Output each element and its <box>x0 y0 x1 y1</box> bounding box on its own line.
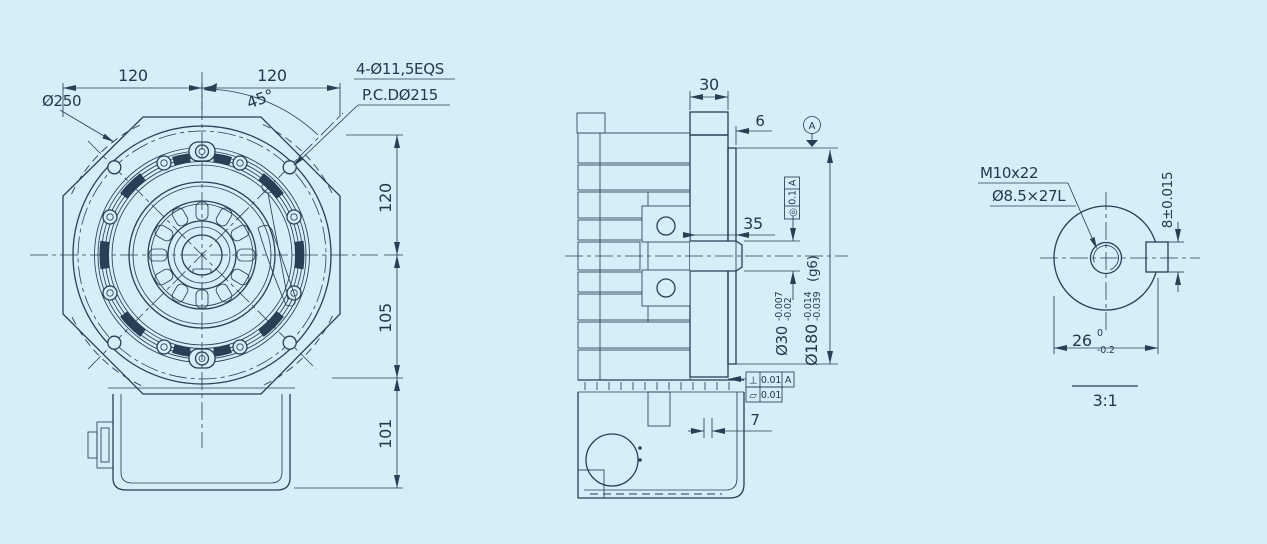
dim-shaft-35: 35 <box>683 214 775 238</box>
fcf-perp-symbol: ⊥ <box>749 376 758 387</box>
dia180-nominal: Ø180 <box>802 324 821 366</box>
fcf-runout: ◎ 0.1 A <box>785 177 800 219</box>
section-view: 30 6 A ◎ 0.1 A <box>565 75 848 498</box>
dim-101: 101 <box>376 419 395 449</box>
fcf-runout-tol: 0.1 <box>788 190 799 205</box>
front-view: 120 120 45° Ø250 4-Ø11,5EQS P.C.DØ215 <box>30 60 455 490</box>
fcf-flat-tol: 0.01 <box>761 390 782 401</box>
dim-120-right: 120 <box>257 66 287 85</box>
label-m10: M10x22 <box>980 164 1038 182</box>
cable-gland <box>586 434 638 486</box>
dia250-leader: Ø250 <box>42 92 114 142</box>
connector <box>97 422 113 468</box>
fcf-bottom: ⊥ 0.01 A ▱ 0.01 <box>728 372 794 402</box>
fcf-runout-datum: A <box>788 179 799 186</box>
dim-dia30: Ø30 -0.007 -0.02 <box>744 216 800 356</box>
dia30-lower: -0.02 <box>783 297 794 321</box>
dim-120-left: 120 <box>118 66 148 85</box>
dim-45deg-text: 45° <box>244 85 276 112</box>
dim-26-upper: 0 <box>1097 328 1103 339</box>
dim-26-lower: -0.2 <box>1097 345 1115 356</box>
dia180-lower: -0.039 <box>812 291 823 321</box>
dim-30: 30 <box>699 75 719 94</box>
fcf-runout-symbol: ◎ <box>788 208 799 217</box>
terminal-box-section <box>578 380 744 498</box>
thread-note-group: M10x22 Ø8.5×27L <box>978 164 1097 249</box>
key-block <box>1146 242 1168 272</box>
label-pcd-note: P.C.DØ215 <box>362 86 438 104</box>
fcf-perp-tol: 0.01 <box>761 375 782 386</box>
label-dia250: Ø250 <box>42 92 81 110</box>
dim-top-chain: 120 120 <box>63 66 340 117</box>
dim-120-vert: 120 <box>376 183 395 213</box>
front-centerlines <box>30 72 380 448</box>
scale-label-group: 3:1 <box>1072 386 1138 410</box>
datum-a-symbol: A <box>736 117 838 149</box>
fcf-flat-symbol: ▱ <box>749 391 757 402</box>
cad-drawing-canvas: 120 120 45° Ø250 4-Ø11,5EQS P.C.DØ215 <box>0 0 1267 544</box>
dim-7: 7 <box>750 411 759 429</box>
dia30-nominal: Ø30 <box>773 326 791 356</box>
dim-key-8: 8±0.015 <box>1160 172 1184 292</box>
dim-35: 35 <box>743 214 763 233</box>
dim-flange-30: 30 <box>690 75 728 110</box>
detail-view: M10x22 Ø8.5×27L 8±0.015 26 0 -0.2 <box>978 164 1200 410</box>
dim-gap-7: 7 <box>688 411 772 438</box>
dim-26-nominal: 26 <box>1072 331 1092 350</box>
label-hole: Ø8.5×27L <box>992 187 1066 205</box>
terminal-box-front <box>88 388 295 490</box>
datum-a-label: A <box>809 121 816 132</box>
dim-105: 105 <box>376 303 395 333</box>
dia180-fit: (g6) <box>805 255 821 282</box>
motor-drawing-svg: 120 120 45° Ø250 4-Ø11,5EQS P.C.DØ215 <box>0 0 1267 544</box>
dim-key-width: 8±0.015 <box>1160 172 1176 228</box>
fcf-perp-datum: A <box>785 375 792 386</box>
holes-note: 4-Ø11,5EQS P.C.DØ215 <box>293 60 455 166</box>
dim-spigot-6: 6 <box>736 112 772 145</box>
dim-right-chain: 120 105 101 <box>294 135 403 488</box>
motor-body-section <box>577 113 690 380</box>
dim-6: 6 <box>755 112 764 130</box>
label-scale: 3:1 <box>1093 391 1118 410</box>
label-holes-note: 4-Ø11,5EQS <box>356 60 444 78</box>
